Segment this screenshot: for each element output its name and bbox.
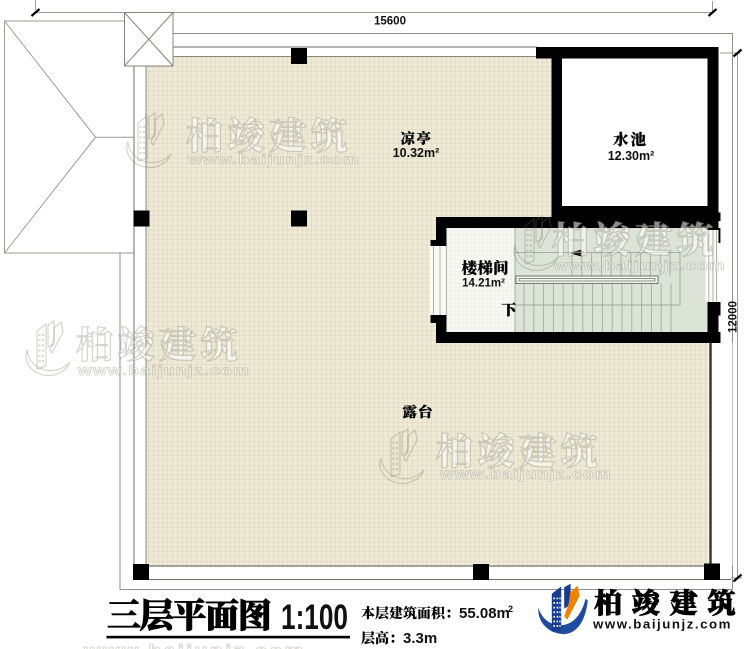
svg-text:www.baijunjz.com: www.baijunjz.com [553,258,726,273]
svg-text:12.30m²: 12.30m² [608,149,655,163]
svg-text:2: 2 [508,604,513,614]
svg-text:www.baijunjz.com: www.baijunjz.com [439,467,612,482]
svg-text:www.baijunjz.com: www.baijunjz.com [83,641,306,649]
svg-text:10.32m²: 10.32m² [393,146,440,160]
svg-text:12000: 12000 [728,301,740,333]
svg-text:14.21m²: 14.21m² [462,278,505,290]
svg-text:55.08m: 55.08m [459,605,510,622]
svg-text:3.3m: 3.3m [403,630,437,647]
svg-text:www.baijunjz.com: www.baijunjz.com [592,617,732,632]
svg-text:1:100: 1:100 [281,598,348,637]
svg-text:15600: 15600 [374,16,406,28]
svg-text:www.baijunjz.com: www.baijunjz.com [187,152,360,167]
svg-text:www.baijunjz.com: www.baijunjz.com [77,363,250,378]
